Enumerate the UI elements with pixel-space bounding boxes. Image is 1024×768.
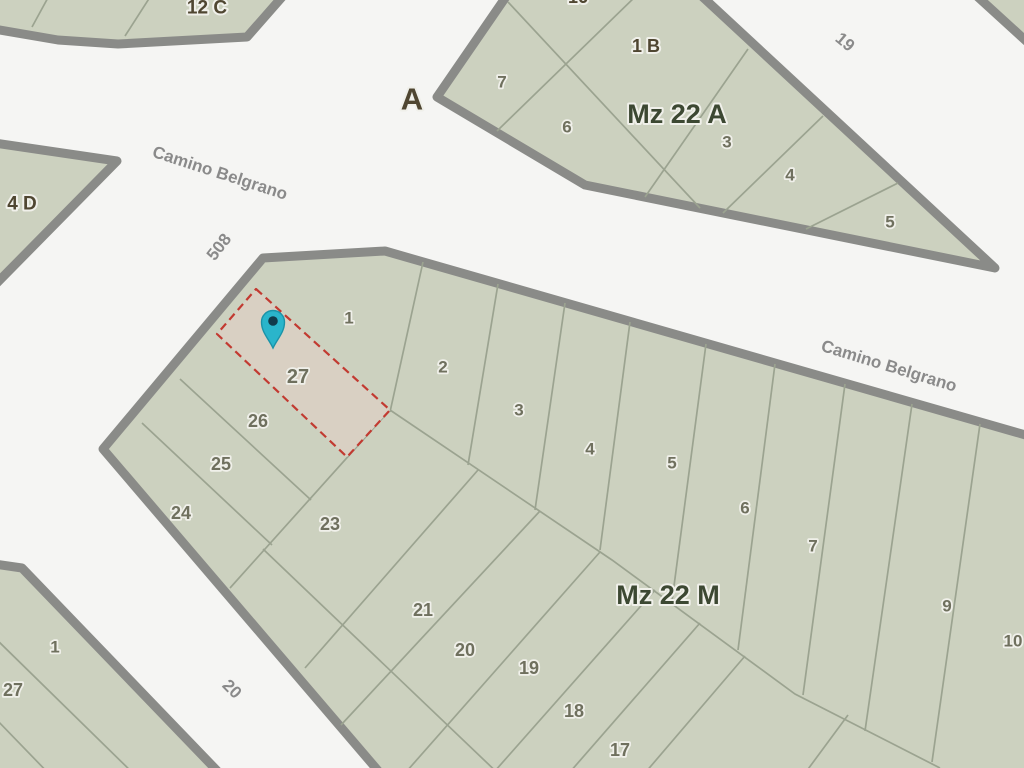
parcel-label: 6 xyxy=(562,118,571,137)
parcel-label: 21 xyxy=(413,600,433,620)
block-label: Mz 22 A xyxy=(627,99,727,129)
parcel-label: 17 xyxy=(610,740,630,760)
parcel-label: 5 xyxy=(885,213,894,232)
parcel-label: 1 xyxy=(344,309,353,328)
area-label: 16 xyxy=(568,0,588,7)
map-pin-dot xyxy=(268,316,278,326)
parcel-label: 26 xyxy=(248,411,268,431)
parcel-label: 20 xyxy=(455,640,475,660)
area-label: 12 C xyxy=(187,0,227,19)
parcel-label: 7 xyxy=(497,73,506,92)
parcel-label: 18 xyxy=(564,701,584,721)
parcel-label: 27 xyxy=(3,680,23,700)
parcel-label: 7 xyxy=(808,537,817,556)
parcel-label: 25 xyxy=(211,454,231,474)
block-label: Mz 22 M xyxy=(616,580,720,610)
parcel-label: 3 xyxy=(722,133,731,152)
parcel-label: 4 xyxy=(585,440,595,459)
parcel-label: 27 xyxy=(287,366,309,388)
parcel-label: 2 xyxy=(438,358,447,377)
parcel-label: 24 xyxy=(171,503,191,523)
parcel-label: 10 xyxy=(1004,632,1023,651)
parcel-label: 9 xyxy=(942,597,951,616)
area-label: 1 B xyxy=(632,36,660,56)
area-label: A xyxy=(401,82,423,117)
parcel-label: 1 xyxy=(50,638,59,657)
cadastral-map-view[interactable]: Camino BelgranoCamino Belgrano5081920Mz … xyxy=(0,0,1024,768)
parcel-label: 5 xyxy=(667,454,676,473)
area-label: 4 D xyxy=(7,194,37,215)
parcel-label: 4 xyxy=(785,166,795,185)
parcel-label: 19 xyxy=(519,658,539,678)
map-canvas[interactable]: Camino BelgranoCamino Belgrano5081920Mz … xyxy=(0,0,1024,768)
parcel-label: 6 xyxy=(740,499,749,518)
parcel-label: 23 xyxy=(320,514,340,534)
parcel-label: 3 xyxy=(514,401,523,420)
